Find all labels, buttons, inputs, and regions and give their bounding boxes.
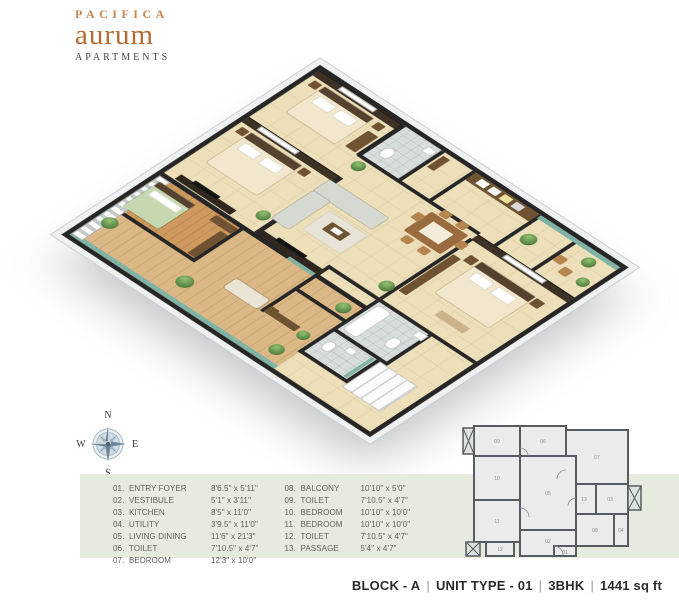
separator: | — [420, 578, 436, 593]
compass-rose-icon: N E S W — [76, 406, 140, 478]
room-legend: 01.ENTRY FOYER8'6.5" x 5'11" 02.VESTIBUL… — [113, 483, 410, 567]
nightstand — [297, 167, 312, 177]
bed-bench — [434, 310, 470, 334]
utility-balcony-glass — [537, 215, 620, 270]
bhk-label: 3BHK — [548, 578, 584, 593]
floorplan-brochure-page: PACIFICA aurum APARTMENTS — [0, 0, 679, 600]
wall — [427, 171, 476, 203]
keyplan-room-number: 08 — [592, 528, 598, 534]
legend-row: 10.BEDROOM10'10" x 10'0" — [285, 507, 411, 519]
brand-name-main: aurum — [75, 22, 170, 50]
keyplan-room-number: 01 — [562, 550, 568, 556]
legend-row: 05.LIVING DINING11'6" x 21'3" — [113, 531, 259, 543]
keyplan-room-number: 06 — [540, 439, 546, 445]
balcony-chair — [557, 266, 574, 277]
legend-row: 03.KITCHEN8'5" x 11'0" — [113, 507, 259, 519]
keyplan-room-number: 12 — [497, 547, 503, 553]
legend-row: 04.UTILITY3'9.5" x 11'0" — [113, 519, 259, 531]
plant — [573, 276, 593, 289]
compass-west-label: W — [76, 439, 86, 450]
keyplan-room-number: 09 — [494, 439, 500, 445]
block-label: BLOCK - A — [352, 578, 420, 593]
compass-east-label: E — [132, 439, 138, 450]
nightstand — [371, 122, 386, 132]
legend-row: 09.TOILET7'10.5" x 4'7" — [285, 495, 411, 507]
legend-row: 12.TOILET7'10.5" x 4'7" — [285, 531, 411, 543]
separator: | — [584, 578, 600, 593]
legend-row: 06.TOILET7'10.5" x 4'7" — [113, 543, 259, 555]
key-plan-2d: 09 06 07 10 05 13 03 08 04 11 12 02 01 — [458, 410, 642, 562]
unit-info-bar: BLOCK - A|UNIT TYPE - 01|3BHK|1441 sq ft — [352, 578, 662, 593]
iso-floorplan-3d — [48, 52, 632, 444]
compass-north-label: N — [104, 410, 111, 421]
legend-column-1: 01.ENTRY FOYER8'6.5" x 5'11" 02.VESTIBUL… — [113, 483, 259, 567]
plant — [516, 231, 541, 247]
legend-row: 11.BEDROOM10'10" x 10'0" — [285, 519, 411, 531]
separator: | — [533, 578, 549, 593]
keyplan-room-number: 13 — [581, 497, 587, 503]
legend-row: 07.BEDROOM12'3" x 10'0" — [113, 555, 259, 567]
legend-row: 13.PASSAGE5'4" x 4'7" — [285, 543, 411, 555]
keyplan-room-number: 03 — [607, 497, 613, 503]
legend-row: 01.ENTRY FOYER8'6.5" x 5'11" — [113, 483, 259, 495]
wall — [531, 239, 580, 271]
legend-row: 08.BALCONY10'10" x 5'0" — [285, 483, 411, 495]
legend-row: 02.VESTIBULE5'1" x 3'11" — [113, 495, 259, 507]
legend-column-2: 08.BALCONY10'10" x 5'0" 09.TOILET7'10.5"… — [285, 483, 411, 567]
apartment-footprint — [61, 65, 628, 437]
keyplan-room-number: 11 — [494, 519, 499, 525]
keyplan-room-number: 10 — [494, 476, 500, 482]
keyplan-room-number: 07 — [594, 455, 600, 461]
keyplan-room-number: 02 — [545, 539, 551, 545]
unit-type-label: UNIT TYPE - 01 — [436, 578, 533, 593]
keyplan-room-number: 05 — [545, 491, 551, 497]
keyplan-room-number: 04 — [618, 528, 624, 534]
area-label: 1441 sq ft — [600, 578, 662, 593]
